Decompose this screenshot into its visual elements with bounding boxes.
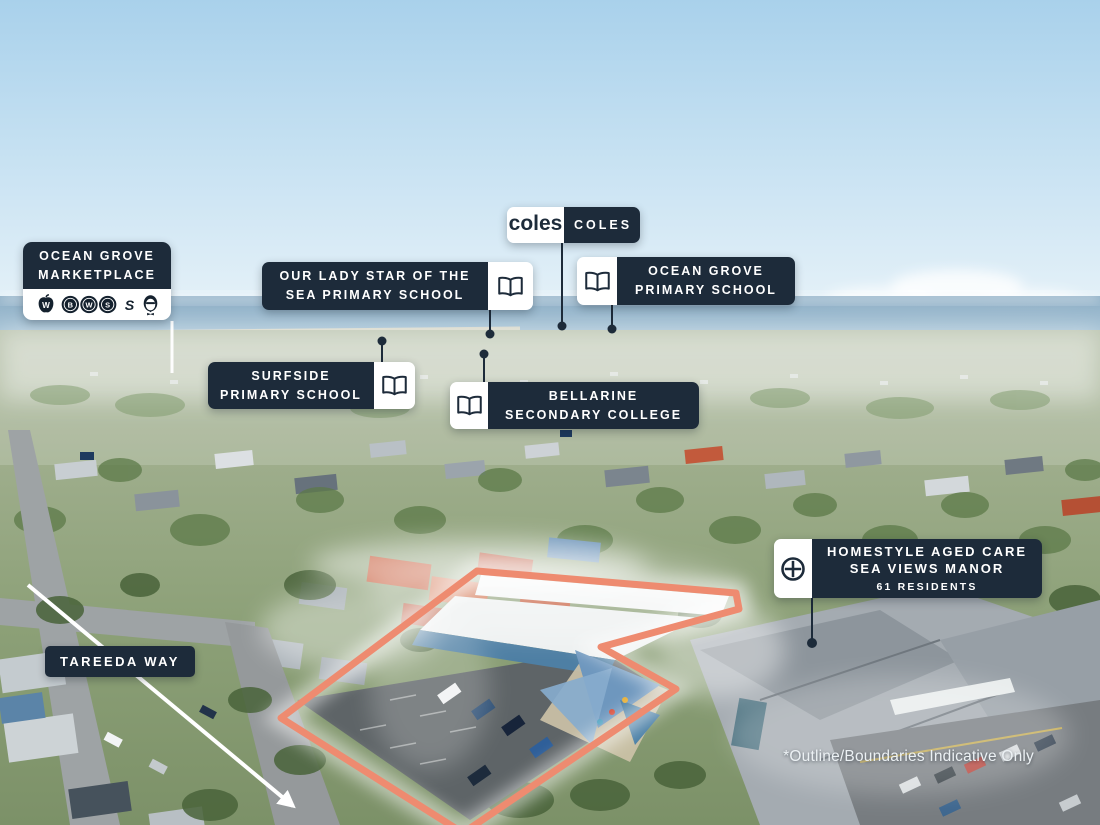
open-book-icon xyxy=(584,268,611,295)
coles-label: coles COLES xyxy=(507,207,640,243)
svg-text:S: S xyxy=(105,300,110,309)
bellarine-icon-box xyxy=(450,382,488,429)
our-lady-label-text: OUR LADY STAR OF THE SEA PRIMARY SCHOOL xyxy=(262,262,488,310)
marketplace-line1: OCEAN GROVE xyxy=(33,247,161,266)
surfside-label-text: SURFSIDE PRIMARY SCHOOL xyxy=(208,362,374,409)
homestyle-residents: 61 RESIDENTS xyxy=(822,580,1032,594)
disclaimer-text: *Outline/Boundaries Indicative Only xyxy=(783,748,1034,766)
woolworths-icon: W xyxy=(36,294,56,316)
marketplace-line2: MARKETPLACE xyxy=(33,266,161,285)
bws-icon: B W S xyxy=(61,294,117,315)
street-direction-arrow xyxy=(28,585,293,806)
svg-text:W: W xyxy=(42,301,50,310)
ocean-grove-primary-label-text: OCEAN GROVE PRIMARY SCHOOL xyxy=(617,257,795,305)
open-book-icon xyxy=(497,273,524,300)
boundary-outline-glow xyxy=(281,571,739,825)
marketplace-brand-strip: W B W S S xyxy=(23,289,171,320)
bellarine-label: BELLARINE SECONDARY COLLEGE xyxy=(450,382,699,429)
street-label: TAREEDA WAY xyxy=(45,646,195,677)
coles-logo-box: coles xyxy=(507,207,564,243)
coles-label-text: COLES xyxy=(564,207,640,243)
marketplace-label: OCEAN GROVE MARKETPLACE W B W S S xyxy=(23,242,171,320)
ocean-grove-primary-label: OCEAN GROVE PRIMARY SCHOOL xyxy=(577,257,795,305)
our-lady-icon-box xyxy=(488,262,533,310)
medical-cross-icon xyxy=(779,555,807,583)
open-book-icon xyxy=(456,392,483,419)
homestyle-icon-box xyxy=(774,539,812,598)
coles-logo: coles xyxy=(507,212,564,239)
homestyle-label-text: HOMESTYLE AGED CARE SEA VIEWS MANOR 61 R… xyxy=(812,539,1042,598)
bellarine-label-text: BELLARINE SECONDARY COLLEGE xyxy=(488,382,699,429)
svg-text:W: W xyxy=(85,300,93,309)
surfside-icon-box xyxy=(374,362,415,409)
svg-text:S: S xyxy=(124,297,134,313)
open-book-icon xyxy=(381,372,408,399)
our-lady-label: OUR LADY STAR OF THE SEA PRIMARY SCHOOL xyxy=(262,262,533,310)
surfside-label: SURFSIDE PRIMARY SCHOOL xyxy=(208,362,415,409)
kfc-colonel-icon xyxy=(142,293,159,317)
ocean-grove-primary-icon-box xyxy=(577,257,617,305)
subway-s-icon: S xyxy=(122,294,137,316)
homestyle-label: HOMESTYLE AGED CARE SEA VIEWS MANOR 61 R… xyxy=(774,539,1042,598)
svg-text:B: B xyxy=(67,300,73,309)
aerial-photo: OCEAN GROVE MARKETPLACE W B W S S xyxy=(0,0,1100,825)
marketplace-label-text: OCEAN GROVE MARKETPLACE xyxy=(23,242,171,289)
